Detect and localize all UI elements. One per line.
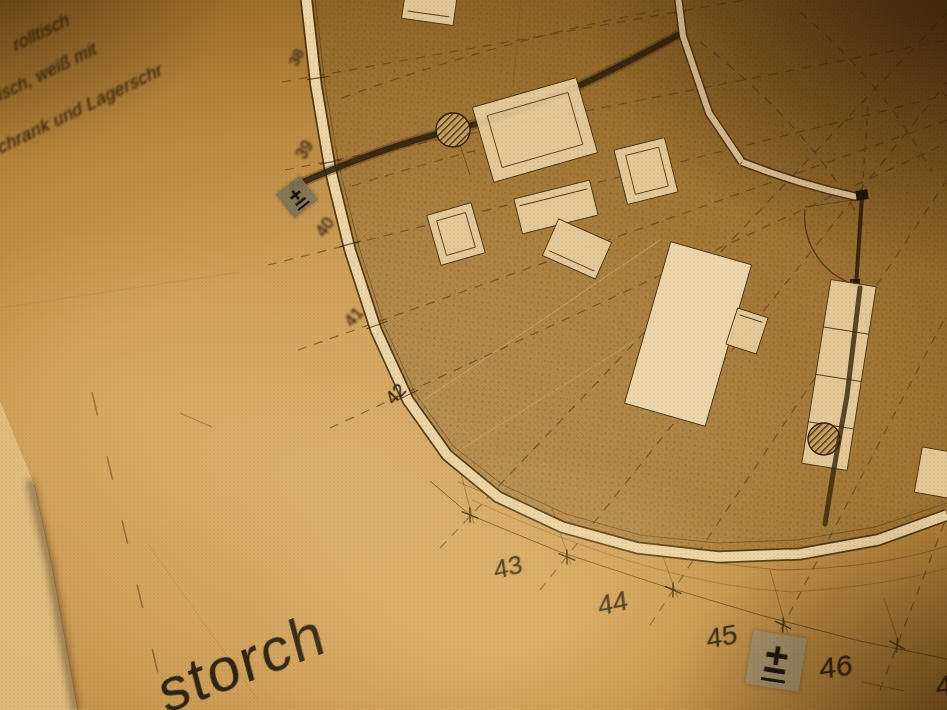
grid-label-47-partial: 4 [935, 670, 947, 702]
floor-area [306, 0, 947, 557]
undersheet-paper-edge [0, 396, 78, 710]
grid-label-45: 45 [706, 620, 739, 653]
floorplan-drawing-canvas [0, 0, 947, 710]
grid-label-46: 46 [819, 650, 853, 685]
grid-label-43: 43 [492, 551, 524, 584]
plus-minus-symbol: ± [284, 183, 310, 210]
floorplan-photo: rolltisch tisch, weiß mit schrank und La… [0, 0, 947, 710]
grid-label-44: 44 [597, 587, 629, 620]
level-marker-lower: ± [745, 630, 807, 692]
plus-minus-symbol: ± [761, 639, 790, 684]
